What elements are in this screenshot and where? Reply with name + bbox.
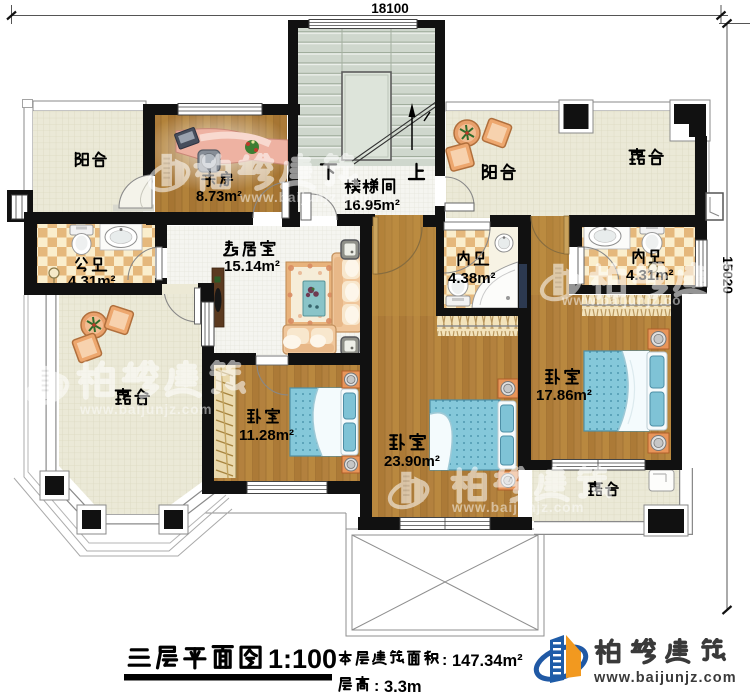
svg-text:18100: 18100 [371,1,409,16]
svg-text:1:100: 1:100 [268,644,337,674]
svg-text:11.28m²: 11.28m² [239,427,294,444]
svg-text:www.baijunjz.com: www.baijunjz.com [561,293,695,308]
svg-text:23.90m²: 23.90m² [384,453,440,470]
svg-text:www.baijunjz.com: www.baijunjz.com [593,670,737,686]
svg-text:147.34m²: 147.34m² [452,652,523,670]
svg-text:17.86m²: 17.86m² [536,387,592,404]
svg-text:www.baijunjz.com: www.baijunjz.com [79,402,213,417]
svg-text::: : [374,678,379,695]
svg-text:4.38m²: 4.38m² [448,270,496,287]
svg-text:www.baijunjz.com: www.baijunjz.com [239,190,373,205]
svg-text:www.baijunjz.com: www.baijunjz.com [451,500,585,515]
svg-text:15.14m²: 15.14m² [224,258,280,275]
svg-text:3.3m: 3.3m [384,678,422,696]
svg-text::: : [442,652,447,669]
